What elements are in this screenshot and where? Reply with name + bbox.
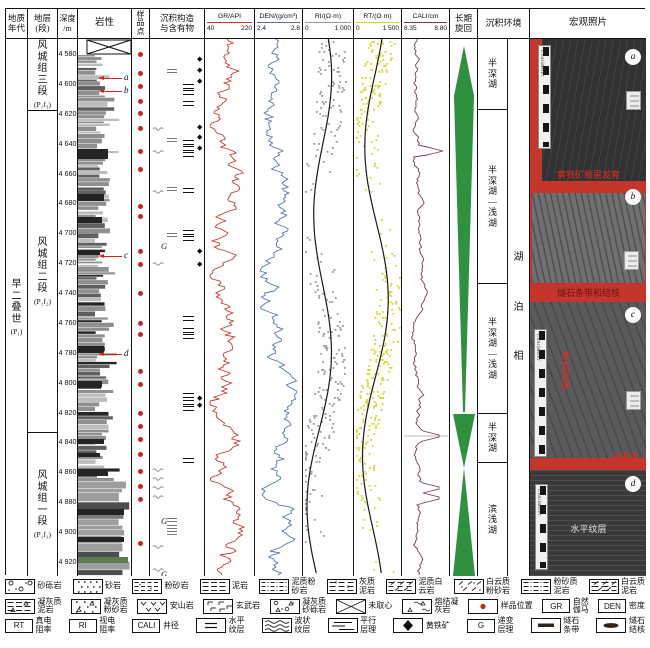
bars-glyph <box>183 230 194 235</box>
legend-item-label: 视电阻率 <box>99 617 115 634</box>
header-formation-line2: (段) <box>35 24 49 34</box>
legend-symbol-plam <box>328 618 358 633</box>
facies-char: 湖 <box>514 252 524 264</box>
track-title-GR: GR/API <box>218 13 241 21</box>
sample-point-dot <box>138 167 143 172</box>
struct-pyrite-icon: ◆ <box>197 248 202 255</box>
environment-char: — <box>488 349 497 360</box>
legend-symbol-weldedtuff <box>402 599 432 614</box>
bars-glyph <box>183 152 194 157</box>
struct-chert-band-symbol <box>167 187 177 192</box>
environment-section: 半深湖—浅湖 <box>478 110 507 284</box>
header-age-line2: 年代 <box>8 24 25 34</box>
core-photo-arrow <box>104 354 122 355</box>
chert-glyph <box>167 69 177 74</box>
track-title-CALI: CALI/cm <box>412 13 438 21</box>
environment-char: 湖 <box>488 218 497 229</box>
wavy-glyph <box>152 484 166 490</box>
legend-symbol-siltymud <box>521 579 551 594</box>
photo-cell-b: b燧石条带和结核 <box>530 181 646 299</box>
struct-parallel-bedding-symbol <box>183 84 194 89</box>
header-depth-line2: /m <box>63 24 71 34</box>
bars-glyph <box>183 406 194 411</box>
track-scale: 01 500 <box>354 24 401 34</box>
column-sample-points <box>131 39 149 576</box>
formation-code: (P₁f₃) <box>34 100 51 109</box>
photo-annotation: 黄铁矿顺层发育 <box>530 170 646 180</box>
legend-item-label: 砂岩 <box>105 582 121 591</box>
age-char: 二 <box>12 291 22 303</box>
chertband-icon <box>531 618 561 633</box>
struct-graded-bedding-symbol: G <box>161 243 167 250</box>
legend-symbol-pyrite <box>393 618 423 633</box>
legend-symbol-mud <box>200 579 230 594</box>
core-photo-arrow-label: b <box>124 85 129 95</box>
legend-item: 灰质泥岩 <box>327 578 376 595</box>
sand-icon <box>73 579 103 594</box>
core-photo-arrow <box>104 256 122 257</box>
environment-char: 浅 <box>488 514 497 525</box>
environment-char: 半 <box>488 317 497 328</box>
sample-point-dot <box>138 332 143 337</box>
sample-point-dot <box>138 321 143 326</box>
legend-item-label: 凝灰质泥岩 <box>38 598 62 615</box>
chert-glyph <box>167 138 177 143</box>
formation-char: 组 <box>38 260 48 272</box>
wavy-glyph <box>152 475 166 481</box>
legend-item-label: 泥质粉砂岩 <box>292 578 316 595</box>
struct-pyrite-icon: ◆ <box>197 56 202 63</box>
centimeter-ruler: Centimeter <box>534 329 547 457</box>
column-long-term-cycle <box>449 39 477 576</box>
legend-item: 砂砾岩 <box>5 579 62 594</box>
legend-item-label: 燧石条带 <box>563 617 579 634</box>
legend-row: 凝灰质泥岩凝灰质粉砂岩安山岩玄武岩凝灰质砂砾岩未取心熔结凝灰岩样品位置GR自然伽… <box>4 598 646 615</box>
sample-point-dot <box>138 369 143 374</box>
environment-char: 滨 <box>488 504 497 515</box>
ruler-text: Centimeter <box>539 50 544 77</box>
struct-pyrite-icon: ◆ <box>197 145 202 152</box>
depth-tick-label: 4 840 <box>58 437 77 446</box>
photo-annotation: 燧石条带和结核 <box>530 288 646 298</box>
facies-char: 泊 <box>514 302 524 314</box>
sample-point-dot <box>138 437 143 442</box>
environment-char: 半 <box>488 422 497 433</box>
depth-tick-label: 4 740 <box>58 288 77 297</box>
track-max-DEN: 2.8 <box>291 24 300 34</box>
environment-char: 湖 <box>488 370 497 381</box>
legend-row: 砂砾岩砂岩粉砂岩泥岩泥质粉砂岩灰质泥岩泥质白云岩白云质粉砂岩粉砂质泥岩白云质泥岩 <box>4 578 646 595</box>
track-curve-CALI <box>402 39 449 576</box>
legend-item: 粉砂岩 <box>132 579 189 594</box>
chert-glyph <box>167 187 177 192</box>
wavy-glyph <box>152 493 166 499</box>
ri-box-icon: RI <box>69 619 97 633</box>
legend-symbol-nocore <box>336 599 366 614</box>
ruler-text: Centimeter <box>536 489 541 516</box>
depth-tick-label: 4 580 <box>58 49 77 58</box>
legend-symbol-silt <box>132 579 162 594</box>
environment-section: 半深湖 <box>478 414 507 463</box>
sample-point-dot <box>138 126 143 131</box>
environment-char: 深 <box>488 69 497 80</box>
legend-symbol-andesite <box>137 599 167 614</box>
muddysilt-icon <box>259 579 289 594</box>
legend-item: 凝灰质粉砂岩 <box>71 598 128 615</box>
g-box-icon: G <box>467 619 495 633</box>
bars-glyph <box>183 101 194 106</box>
photo-annotation: 水平纹层 <box>530 524 646 534</box>
struct-chert-band-symbol <box>167 69 177 74</box>
legend-item: 泥质粉砂岩 <box>259 578 316 595</box>
struct-wavy-lamination-symbol <box>152 148 166 154</box>
facies-label: 湖泊相 <box>508 39 529 576</box>
chertnodule-icon <box>596 618 626 633</box>
struct-wavy-lamination-symbol <box>152 260 166 266</box>
silt-icon <box>132 579 162 594</box>
track-header-GR: GR/API40220 <box>204 9 254 39</box>
struct-parallel-bedding-symbol <box>183 328 194 333</box>
environment-char: 湖 <box>488 443 497 454</box>
ruler-text: Centimeter <box>535 334 540 361</box>
depth-tick-label: 4 900 <box>58 527 77 536</box>
environment-section: 半深湖 <box>478 39 507 110</box>
sample-point-dot <box>138 411 143 416</box>
legend-item: 玄武岩 <box>203 599 260 614</box>
track-scale: 40220 <box>205 24 254 34</box>
legend-symbol-sampledot <box>468 599 498 614</box>
track-title-underline <box>356 22 399 23</box>
track-body-CALI <box>401 39 449 576</box>
track-min-CALI: 8.35 <box>404 24 417 34</box>
lithology-log <box>78 39 131 576</box>
environment-section: 滨浅湖 <box>478 463 507 576</box>
legend-symbol-gravel <box>5 579 35 594</box>
track-title-RI: RI/(Ω·m) <box>315 13 341 21</box>
track-body-DEN <box>254 39 302 576</box>
depth-tick-label: 4 680 <box>58 198 77 207</box>
environment-char: 湖 <box>488 79 497 90</box>
depth-tick-label: 4 880 <box>58 497 77 506</box>
track-scale: 01 000 <box>303 24 353 34</box>
legend-item-label: 粉砂岩 <box>165 582 189 591</box>
depth-tick-label: 4 920 <box>58 557 77 566</box>
sample-point-dot <box>138 71 143 76</box>
legend-item-label: 未取心 <box>368 602 392 611</box>
bars-glyph <box>183 236 194 241</box>
legend-symbol-limymud <box>327 579 357 594</box>
column-depth: 4 5804 6004 6204 6404 6604 6804 7004 720… <box>57 39 77 576</box>
sample-point-dot <box>138 469 143 474</box>
track-curve-DEN <box>255 39 302 576</box>
scale-card <box>626 391 641 410</box>
legend-symbol-tuffsilt <box>71 599 101 614</box>
column-structures: ◆◆◆◆◆◆G◆◆◆◆GG <box>149 39 204 576</box>
struct-parallel-bedding-symbol <box>183 316 194 321</box>
limymud-icon <box>327 579 357 594</box>
den-box-icon: DEN <box>598 599 626 613</box>
track-header-CALI: CALI/cm8.358.80 <box>401 9 449 39</box>
environment-char: 半 <box>488 165 497 176</box>
legend-symbol-lbox-CALI: CALI <box>132 619 160 633</box>
struct-parallel-bedding-symbol <box>183 90 194 95</box>
legend-item: 波状纹层 <box>262 617 311 634</box>
legend-symbol-hlam <box>196 618 226 633</box>
formation-char: 风 <box>38 237 48 249</box>
depth-tick-label: 4 700 <box>58 228 77 237</box>
core-photo-arrow-label: d <box>124 348 129 358</box>
photo-cell-c: cCentimeter递变层理冲刷面 <box>530 299 646 468</box>
legend-item-label: 递变层理 <box>498 617 514 634</box>
struct-chert-band-symbol <box>167 525 177 530</box>
sample-point-dot <box>138 452 143 457</box>
depth-tick-label: 4 660 <box>58 169 77 178</box>
legend-symbol-dolomud <box>589 579 619 594</box>
track-title-underline <box>207 22 252 23</box>
column-facies: 湖泊相 <box>507 39 529 576</box>
header-sample-points: 样品点 <box>131 9 149 39</box>
struct-wavy-lamination-symbol <box>152 125 166 131</box>
track-body-GR <box>204 39 254 576</box>
track-scale: 2.42.8 <box>255 24 302 34</box>
legend-item: 凝灰质砂砾岩 <box>270 598 327 615</box>
header-depth: 深度 /m <box>57 9 77 39</box>
legend-item: 砂岩 <box>73 579 122 594</box>
pyrite-icon <box>393 618 423 633</box>
legend-item: DEN密度 <box>598 599 645 613</box>
legend-item: 平行层理 <box>328 617 377 634</box>
struct-wavy-lamination-symbol <box>152 493 166 499</box>
header-long-term-cycle: 长期 旋回 <box>449 9 477 39</box>
struct-parallel-bedding-symbol <box>183 400 194 405</box>
struct-wavy-lamination-symbol <box>152 484 166 490</box>
legend-item: 黄铁矿 <box>393 618 450 633</box>
track-min-RT: 0 <box>356 24 360 34</box>
formation-char: 城 <box>38 249 48 261</box>
bars-glyph <box>183 334 194 339</box>
core-photo-arrow-label: c <box>124 250 128 260</box>
legend-symbol-lbox-GR: GR <box>542 599 570 613</box>
track-title-underline <box>404 22 447 23</box>
column-photos: aCentimeter黄铁矿顺层发育b燧石条带和结核cCentimeter递变层… <box>529 39 646 576</box>
column-lithology: abcd <box>77 39 131 576</box>
sampledot-icon <box>468 599 498 614</box>
formation-char: 段 <box>38 86 48 98</box>
formation-char: 城 <box>38 52 48 64</box>
legend-item-label: 密度 <box>629 602 645 611</box>
struct-parallel-bedding-symbol <box>183 140 194 145</box>
bars-glyph <box>183 316 194 321</box>
track-curve-GR <box>205 39 254 576</box>
header-geologic-age: 地质 年代 <box>6 9 27 39</box>
photo-label-circle: b <box>625 189 641 205</box>
struct-parallel-bedding-symbol <box>183 334 194 339</box>
struct-parallel-bedding-symbol <box>183 393 194 398</box>
struct-pyrite-icon: ◆ <box>197 134 202 141</box>
header-cycle-line2: 旋回 <box>455 24 472 34</box>
depth-tick-label: 4 600 <box>58 79 77 88</box>
depth-tick-label: 4 800 <box>58 378 77 387</box>
track-max-RT: 1 500 <box>383 24 399 34</box>
dolosilt-icon <box>454 579 484 594</box>
header-environment-label: 沉积环境 <box>485 19 521 29</box>
struct-pyrite-icon: ◆ <box>197 402 202 409</box>
formation-code: (P₁f₂) <box>34 297 51 306</box>
legend-item-label: 粉砂质泥岩 <box>554 578 578 595</box>
gravel-icon <box>5 579 35 594</box>
legend-item-label: 燧石结核 <box>629 617 645 634</box>
environment-char: 深 <box>488 328 497 339</box>
track-title-DEN: DEN/(g/cm³) <box>260 13 298 21</box>
track-title-RT: RT/(Ω·m) <box>363 13 391 21</box>
environment-char: 湖 <box>488 186 497 197</box>
struct-chert-band-symbol <box>167 518 177 523</box>
track-title-underline <box>257 22 300 23</box>
bars-glyph <box>183 458 194 463</box>
struct-parallel-bedding-symbol <box>183 101 194 106</box>
depth-tick-label: 4 720 <box>58 258 77 267</box>
legend-item: 安山岩 <box>137 599 194 614</box>
bars-glyph <box>183 146 194 151</box>
environment-char: 半 <box>488 58 497 69</box>
environment-char: 深 <box>488 176 497 187</box>
formation-char: 风 <box>38 40 48 52</box>
formation-section: 风城组三段(P₁f₃) <box>28 39 57 111</box>
header-sample-label: 样品点 <box>137 11 145 37</box>
legend-item: RI视电阻率 <box>69 617 116 634</box>
wavy-glyph <box>152 125 166 131</box>
photo-annotation: 冲刷面 <box>612 452 639 462</box>
environment-char: — <box>488 197 497 208</box>
formation-char: 城 <box>38 482 48 494</box>
legend-item: 未取心 <box>336 599 393 614</box>
wavy-glyph <box>152 466 166 472</box>
track-max-GR: 220 <box>241 24 252 34</box>
legend-item: 燧石结核 <box>596 617 645 634</box>
formation-char: 段 <box>38 516 48 528</box>
formation-char: 段 <box>38 283 48 295</box>
struct-wavy-lamination-symbol <box>152 543 166 549</box>
struct-pyrite-icon: ◆ <box>197 67 202 74</box>
photo-annotation: 递变层理 <box>560 351 570 391</box>
legend-item-label: 泥岩 <box>232 582 248 591</box>
legend-symbol-dolosilt <box>454 579 484 594</box>
sample-point-dot <box>138 382 143 387</box>
muddydolo-icon <box>386 579 416 594</box>
legend-item: 水平纹层 <box>196 617 245 634</box>
depth-tick-label: 4 620 <box>58 109 77 118</box>
legend-item-label: 泥质白云岩 <box>419 578 443 595</box>
struct-pyrite-icon: ◆ <box>197 78 202 85</box>
legend-item-label: 熔结凝灰岩 <box>434 598 458 615</box>
formation-char: 二 <box>38 272 48 284</box>
photo-label-circle: c <box>625 307 641 323</box>
sample-point-dot <box>138 291 143 296</box>
bars-glyph <box>183 400 194 405</box>
depth-tick-label: 4 640 <box>58 139 77 148</box>
legend-item-label: 平行层理 <box>360 617 376 634</box>
header-formation: 地层 (段) <box>27 9 57 39</box>
track-scale: 8.358.80 <box>402 24 449 34</box>
legend-item: 熔结凝灰岩 <box>402 598 459 615</box>
plam-icon <box>328 618 358 633</box>
struct-chert-band-symbol <box>167 138 177 143</box>
column-geologic-age: 早二叠世(P₁) <box>6 39 27 576</box>
bars-glyph <box>183 188 194 193</box>
formation-section: 风城组一段(P₁f₁) <box>28 433 57 576</box>
struct-graded-bedding-symbol: G <box>161 518 167 525</box>
track-curve-RI <box>303 39 353 576</box>
sample-point-dot <box>138 484 143 489</box>
legend-item-label: 砂砾岩 <box>38 582 62 591</box>
track-curve-RT <box>354 39 401 576</box>
formation-section: 风城组二段(P₁f₂) <box>28 111 57 433</box>
sample-point-dot <box>138 541 143 546</box>
legend-symbol-chertnodule <box>596 618 626 633</box>
chart-frame: 地质 年代 地层 (段) 深度 /m 岩性 样品点 沉积构造 与含有物 长期 旋… <box>5 8 645 575</box>
age-label: 早二叠世(P₁) <box>6 39 27 576</box>
legend-symbol-tuffmud <box>5 599 35 614</box>
legend-item: 粉砂质泥岩 <box>521 578 578 595</box>
legend-item: CALI井径 <box>132 619 179 633</box>
bars-glyph <box>183 140 194 145</box>
track-header-RI: RI/(Ω·m)01 000 <box>302 9 353 39</box>
photo-cell-a: aCentimeter黄铁矿顺层发育 <box>530 39 646 181</box>
chert-glyph <box>167 531 177 536</box>
column-formation: 风城组三段(P₁f₃)风城组二段(P₁f₂)风城组一段(P₁f₁) <box>27 39 57 576</box>
wavy-glyph <box>152 543 166 549</box>
photo-label-circle: d <box>625 476 641 492</box>
header-environment: 沉积环境 <box>477 9 529 39</box>
legend-item: RT真电阻率 <box>5 617 52 634</box>
photo-label-circle: a <box>625 49 641 65</box>
wavylam-icon <box>262 618 292 633</box>
legend-symbol-lbox-RI: RI <box>69 619 97 633</box>
legend-item-label: 白云质粉砂岩 <box>486 578 510 595</box>
rock-photo <box>530 302 646 458</box>
depth-tick-label: 4 860 <box>58 467 77 476</box>
tuffsilt-icon <box>71 599 101 614</box>
sample-point-dot <box>138 52 143 57</box>
legend-symbol-sand <box>73 579 103 594</box>
track-min-GR: 40 <box>207 24 214 34</box>
struct-wavy-lamination-symbol <box>152 475 166 481</box>
track-max-CALI: 8.80 <box>434 24 447 34</box>
struct-parallel-bedding-symbol <box>183 146 194 151</box>
nocore-icon <box>336 599 366 614</box>
struct-parallel-bedding-symbol <box>183 188 194 193</box>
depth-tick-label: 4 760 <box>58 318 77 327</box>
header-lithology-label: 岩性 <box>95 19 114 29</box>
environment-char: 深 <box>488 433 497 444</box>
struct-parallel-bedding-symbol <box>183 406 194 411</box>
legend-item: 凝灰质泥岩 <box>5 598 62 615</box>
depth-tick-label: 4 780 <box>58 348 77 357</box>
formation-code: (P₁f₁) <box>34 530 51 539</box>
sample-point-dot <box>138 249 143 254</box>
legend-item: 白云质泥岩 <box>589 578 646 595</box>
legend-item-label: 黄铁矿 <box>426 622 450 631</box>
legend-item-label: 安山岩 <box>170 602 194 611</box>
legend-symbol-muddydolo <box>386 579 416 594</box>
photo-cell-d: dCentimeter水平纹层 <box>530 468 646 576</box>
bars-glyph <box>183 90 194 95</box>
sample-point-dot <box>138 214 143 219</box>
legend-item: 燧石条带 <box>531 617 580 634</box>
legend: 砂砾岩砂岩粉砂岩泥岩泥质粉砂岩灰质泥岩泥质白云岩白云质粉砂岩粉砂质泥岩白云质泥岩… <box>4 578 646 637</box>
tuffgravel-icon <box>270 599 300 614</box>
legend-item: GR自然伽马 <box>542 598 589 615</box>
